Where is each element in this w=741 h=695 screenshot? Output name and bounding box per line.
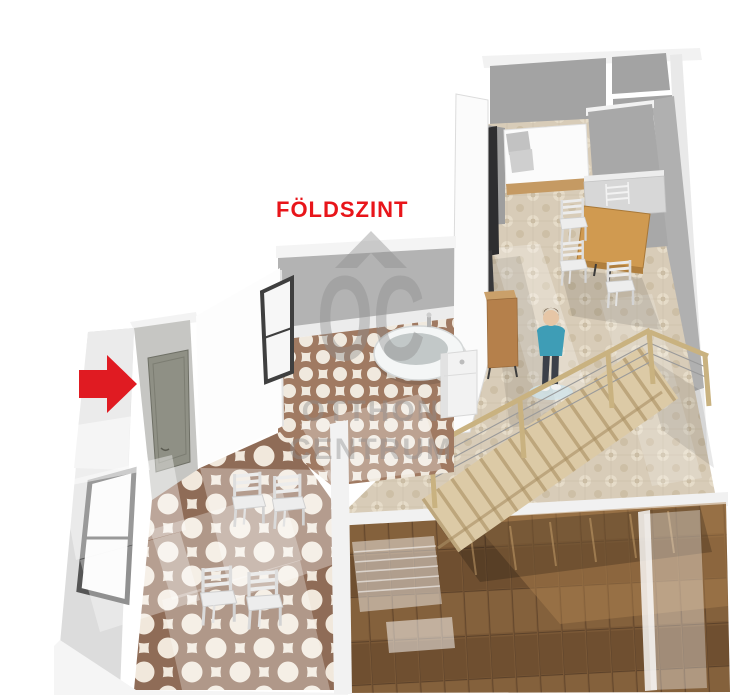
- ghost-bed: [352, 536, 442, 612]
- watermark-line2: CENTRUM: [289, 433, 453, 466]
- floor-label: FÖLDSZINT: [276, 197, 456, 223]
- watermark-monogram: OC: [317, 252, 425, 387]
- entrance-door: [148, 350, 190, 472]
- side-window: [262, 278, 292, 382]
- watermark-line1: OTTHON: [302, 395, 441, 428]
- vanity-sink: [441, 350, 477, 418]
- sideboard: [484, 290, 518, 379]
- ghost-bench: [386, 617, 455, 653]
- floor-plan-render: OC OTTHON CENTRUM FÖLDSZINT: [0, 0, 741, 695]
- floor-plan-svg: OC OTTHON CENTRUM: [0, 0, 741, 695]
- wood-floor-room: [332, 492, 730, 693]
- small-room-wall: [612, 53, 670, 94]
- double-bed: [504, 124, 590, 195]
